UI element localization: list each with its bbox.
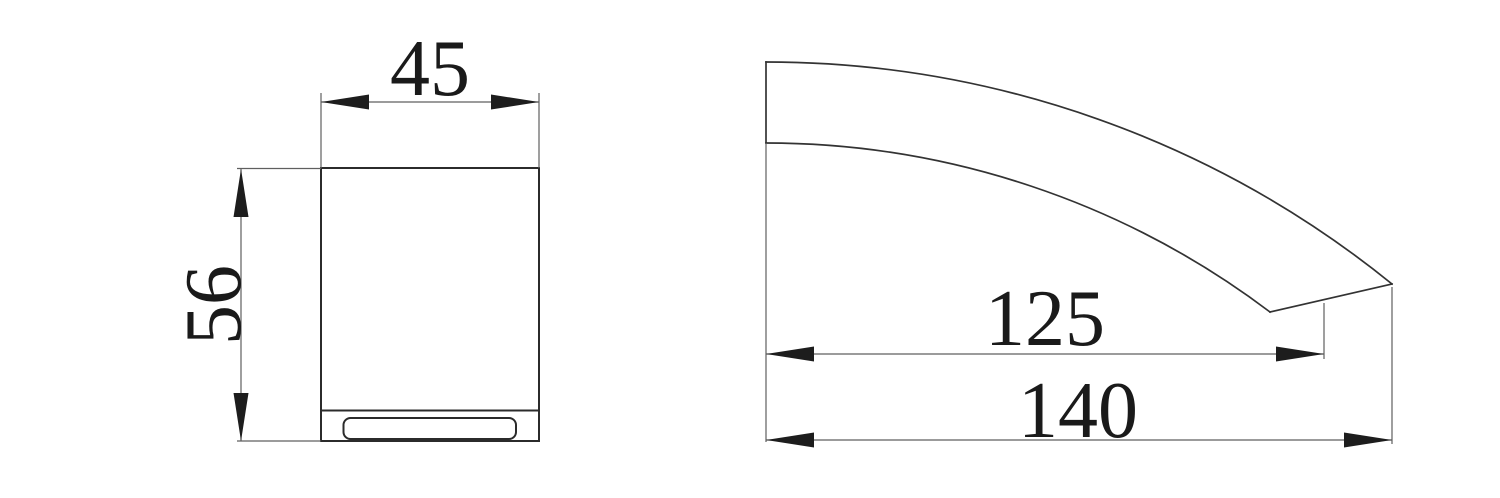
arrowhead-up (234, 169, 249, 217)
spout-tip-face (1270, 284, 1392, 312)
spout-top-curve (766, 62, 1392, 284)
faucet-dimension-drawing: 45 56 125 (0, 0, 1500, 498)
spout-body-front-outline (321, 168, 539, 441)
arrowhead-down (234, 393, 249, 441)
front-height-dimension: 56 (170, 169, 321, 442)
arrowhead-right (491, 95, 539, 110)
overall-reach-dimension-label: 140 (1018, 367, 1138, 455)
technical-drawing-canvas: 45 56 125 (0, 0, 1500, 498)
front-view (321, 168, 539, 441)
width-dimension-label: 45 (390, 25, 470, 113)
arrowhead-right (1344, 433, 1392, 448)
arrowhead-right (1276, 347, 1324, 362)
arrowhead-left (321, 95, 369, 110)
water-outlet-slot (344, 418, 517, 439)
height-dimension-label: 56 (170, 265, 258, 345)
arrowhead-left (766, 433, 814, 448)
front-width-dimension: 45 (321, 25, 539, 168)
spout-reach-dimension-label: 125 (985, 275, 1105, 363)
arrowhead-left (766, 347, 814, 362)
